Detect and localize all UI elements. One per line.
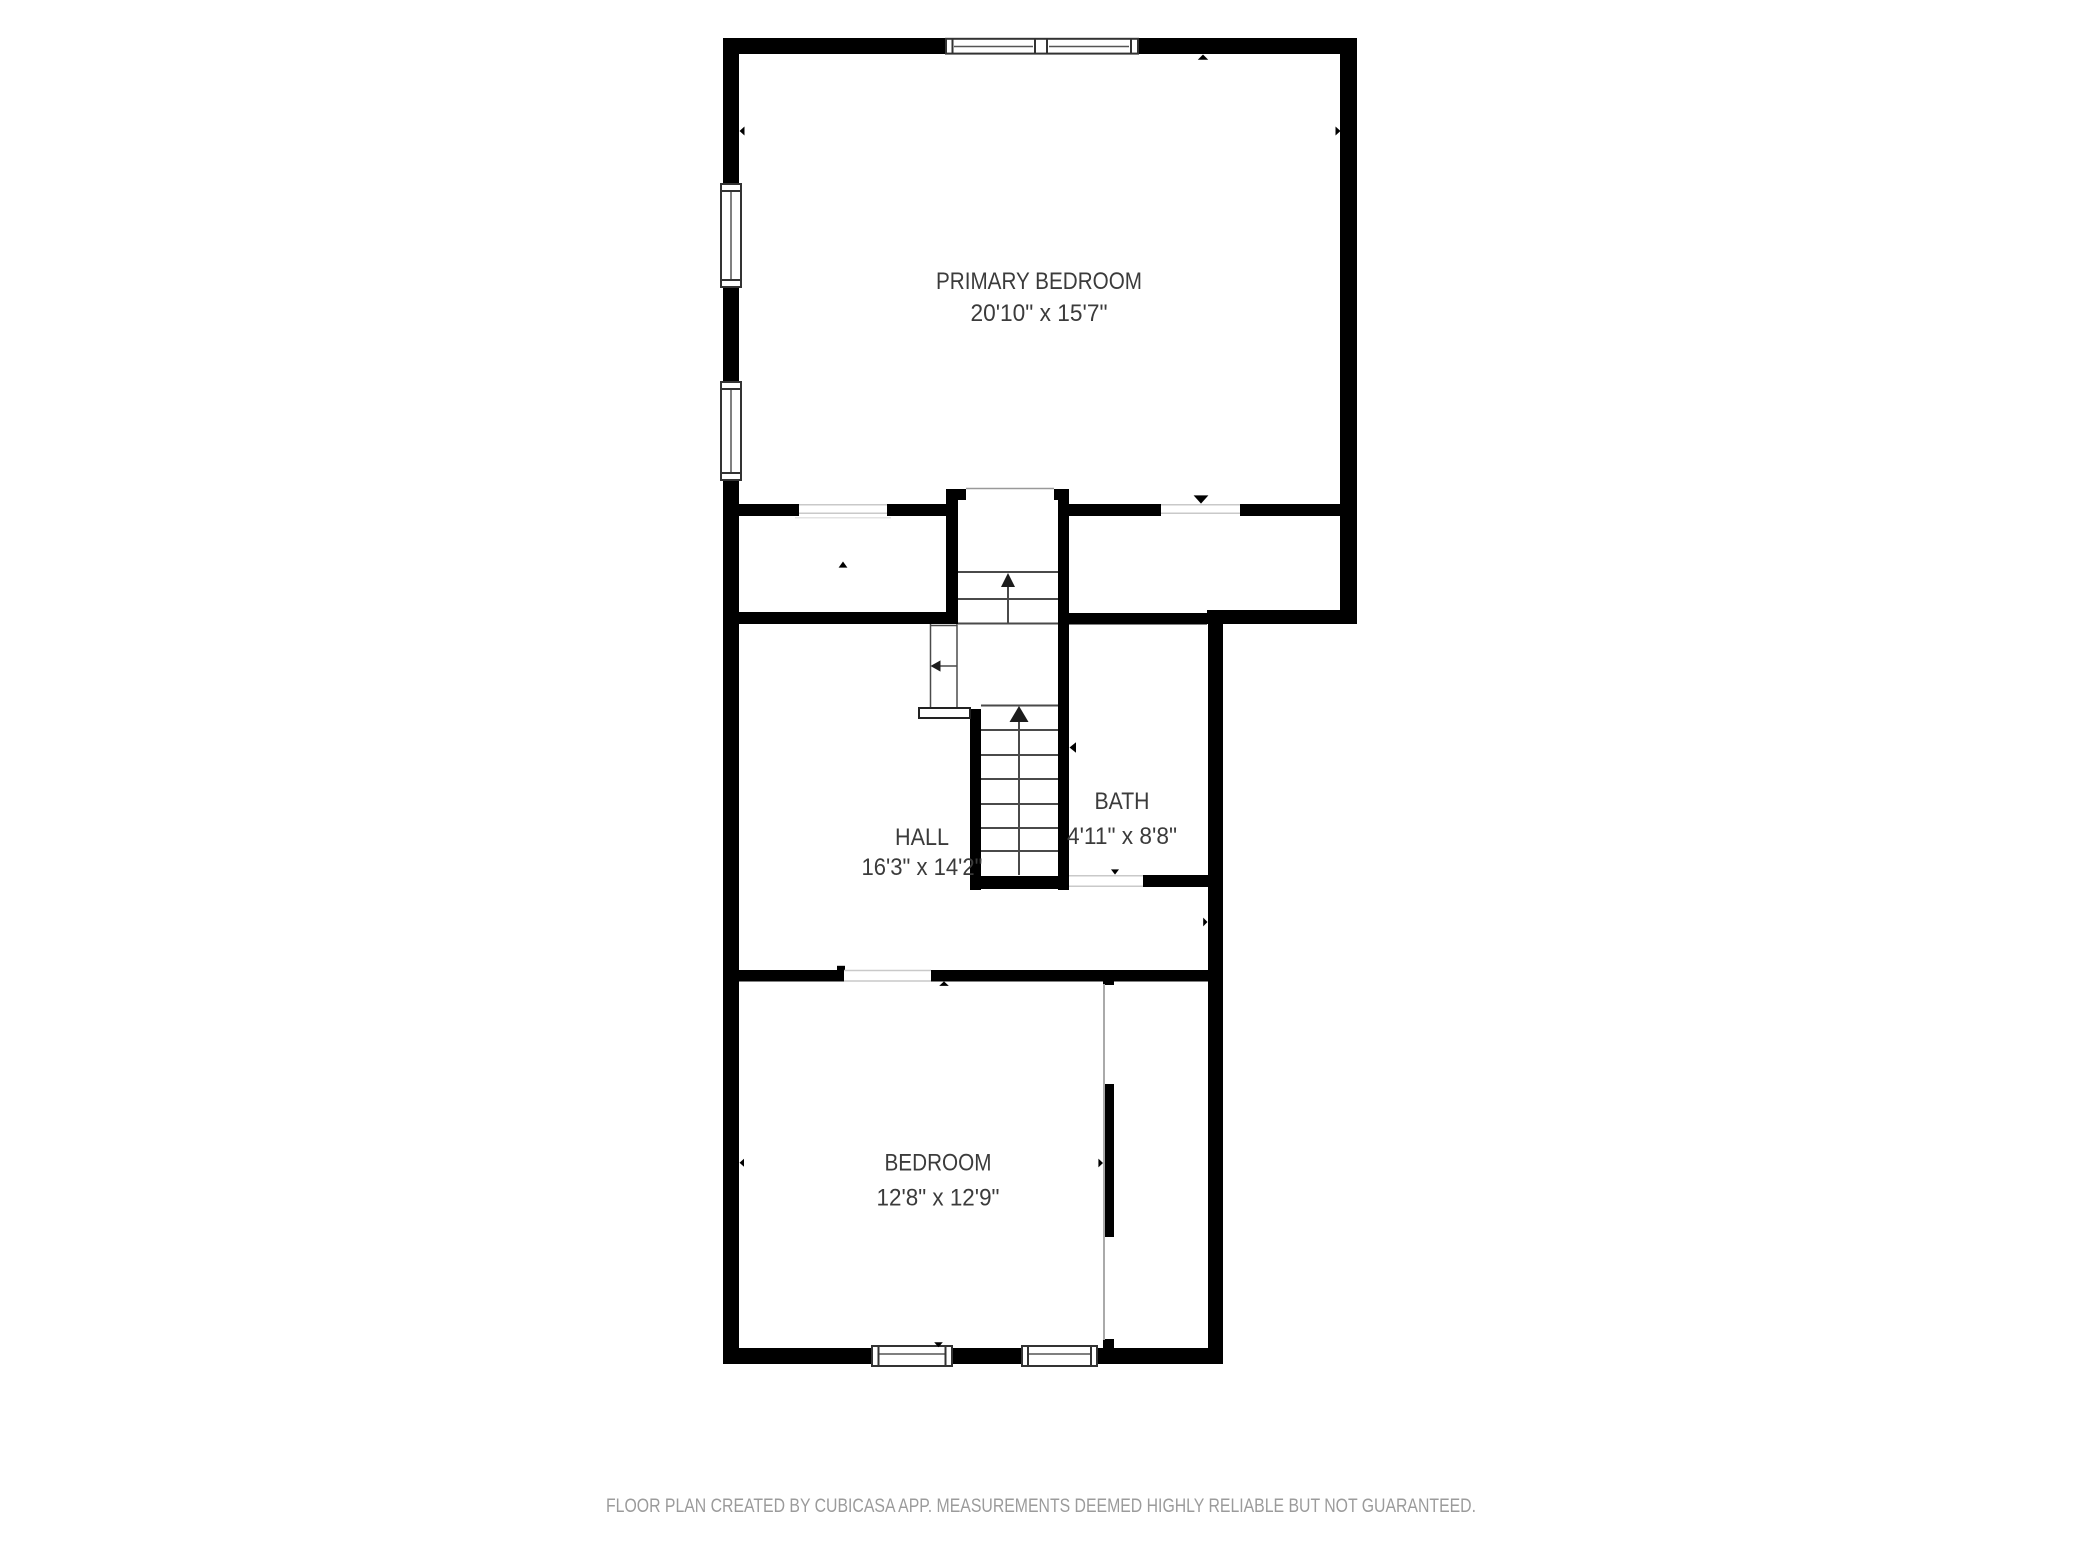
svg-text:BEDROOM: BEDROOM xyxy=(885,1150,992,1177)
svg-text:HALL: HALL xyxy=(895,824,949,851)
svg-text:PRIMARY BEDROOM: PRIMARY BEDROOM xyxy=(936,268,1142,295)
svg-text:16'3" x 14'2": 16'3" x 14'2" xyxy=(862,854,983,881)
svg-text:FLOOR PLAN CREATED BY CUBICASA: FLOOR PLAN CREATED BY CUBICASA APP. MEAS… xyxy=(606,1495,1476,1517)
svg-text:20'10" x 15'7": 20'10" x 15'7" xyxy=(971,300,1108,327)
svg-text:12'8" x 12'9": 12'8" x 12'9" xyxy=(877,1185,1000,1212)
svg-text:4'11" x 8'8": 4'11" x 8'8" xyxy=(1067,823,1177,850)
svg-text:BATH: BATH xyxy=(1095,788,1150,815)
